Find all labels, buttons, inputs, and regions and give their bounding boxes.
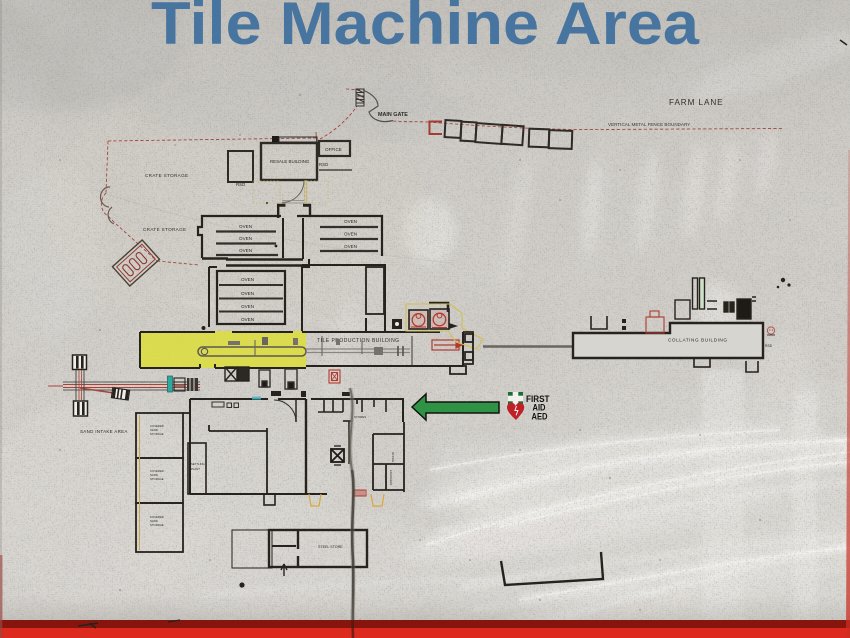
svg-text:OFFICE: OFFICE [325, 147, 342, 152]
svg-text:STORES: STORES [354, 415, 366, 419]
svg-text:FARM LANE: FARM LANE [669, 98, 724, 107]
svg-text:VERTICAL METAL FENCE BOUNDARY: VERTICAL METAL FENCE BOUNDARY [608, 122, 690, 127]
svg-text:OVEN: OVEN [241, 291, 254, 296]
svg-text:MAIN GATE: MAIN GATE [378, 112, 408, 118]
svg-text:CRATE STORAGE: CRATE STORAGE [145, 173, 188, 178]
svg-text:OVEN: OVEN [239, 224, 252, 229]
svg-text:OVEN: OVEN [239, 236, 252, 241]
svg-text:STORAGE: STORAGE [150, 523, 164, 527]
svg-text:RSD: RSD [236, 182, 245, 187]
svg-text:Tile Machine Area: Tile Machine Area [151, 0, 700, 57]
svg-text:STORAGE: STORAGE [150, 432, 164, 436]
svg-text:STEEL STORE: STEEL STORE [318, 545, 343, 549]
svg-text:OFFICE: OFFICE [391, 452, 395, 462]
svg-text:RSD: RSD [765, 344, 773, 348]
svg-text:PLANT: PLANT [191, 467, 200, 471]
svg-text:OVEN: OVEN [241, 304, 254, 309]
svg-text:RESALE BUILDING: RESALE BUILDING [270, 159, 310, 164]
svg-text:RSD: RSD [319, 162, 328, 167]
svg-text:COLLATING BUILDING: COLLATING BUILDING [668, 338, 728, 343]
svg-text:OVEN: OVEN [239, 248, 252, 253]
svg-text:OVEN: OVEN [344, 219, 357, 224]
svg-text:OVEN: OVEN [344, 232, 357, 237]
svg-text:OVEN: OVEN [241, 317, 254, 322]
svg-text:STORAGE: STORAGE [150, 477, 164, 481]
svg-text:TILE PRODUCTION BUILDING: TILE PRODUCTION BUILDING [317, 338, 400, 344]
svg-text:OVEN: OVEN [344, 244, 357, 249]
svg-text:OVEN: OVEN [241, 277, 254, 282]
svg-text:SETTLING: SETTLING [191, 462, 205, 466]
svg-text:ENGINEERS: ENGINEERS [389, 470, 393, 486]
svg-text:AED: AED [532, 412, 548, 423]
svg-text:SAND INTAKE AREA: SAND INTAKE AREA [80, 429, 128, 434]
svg-text:CRATE STORAGE: CRATE STORAGE [143, 227, 186, 232]
